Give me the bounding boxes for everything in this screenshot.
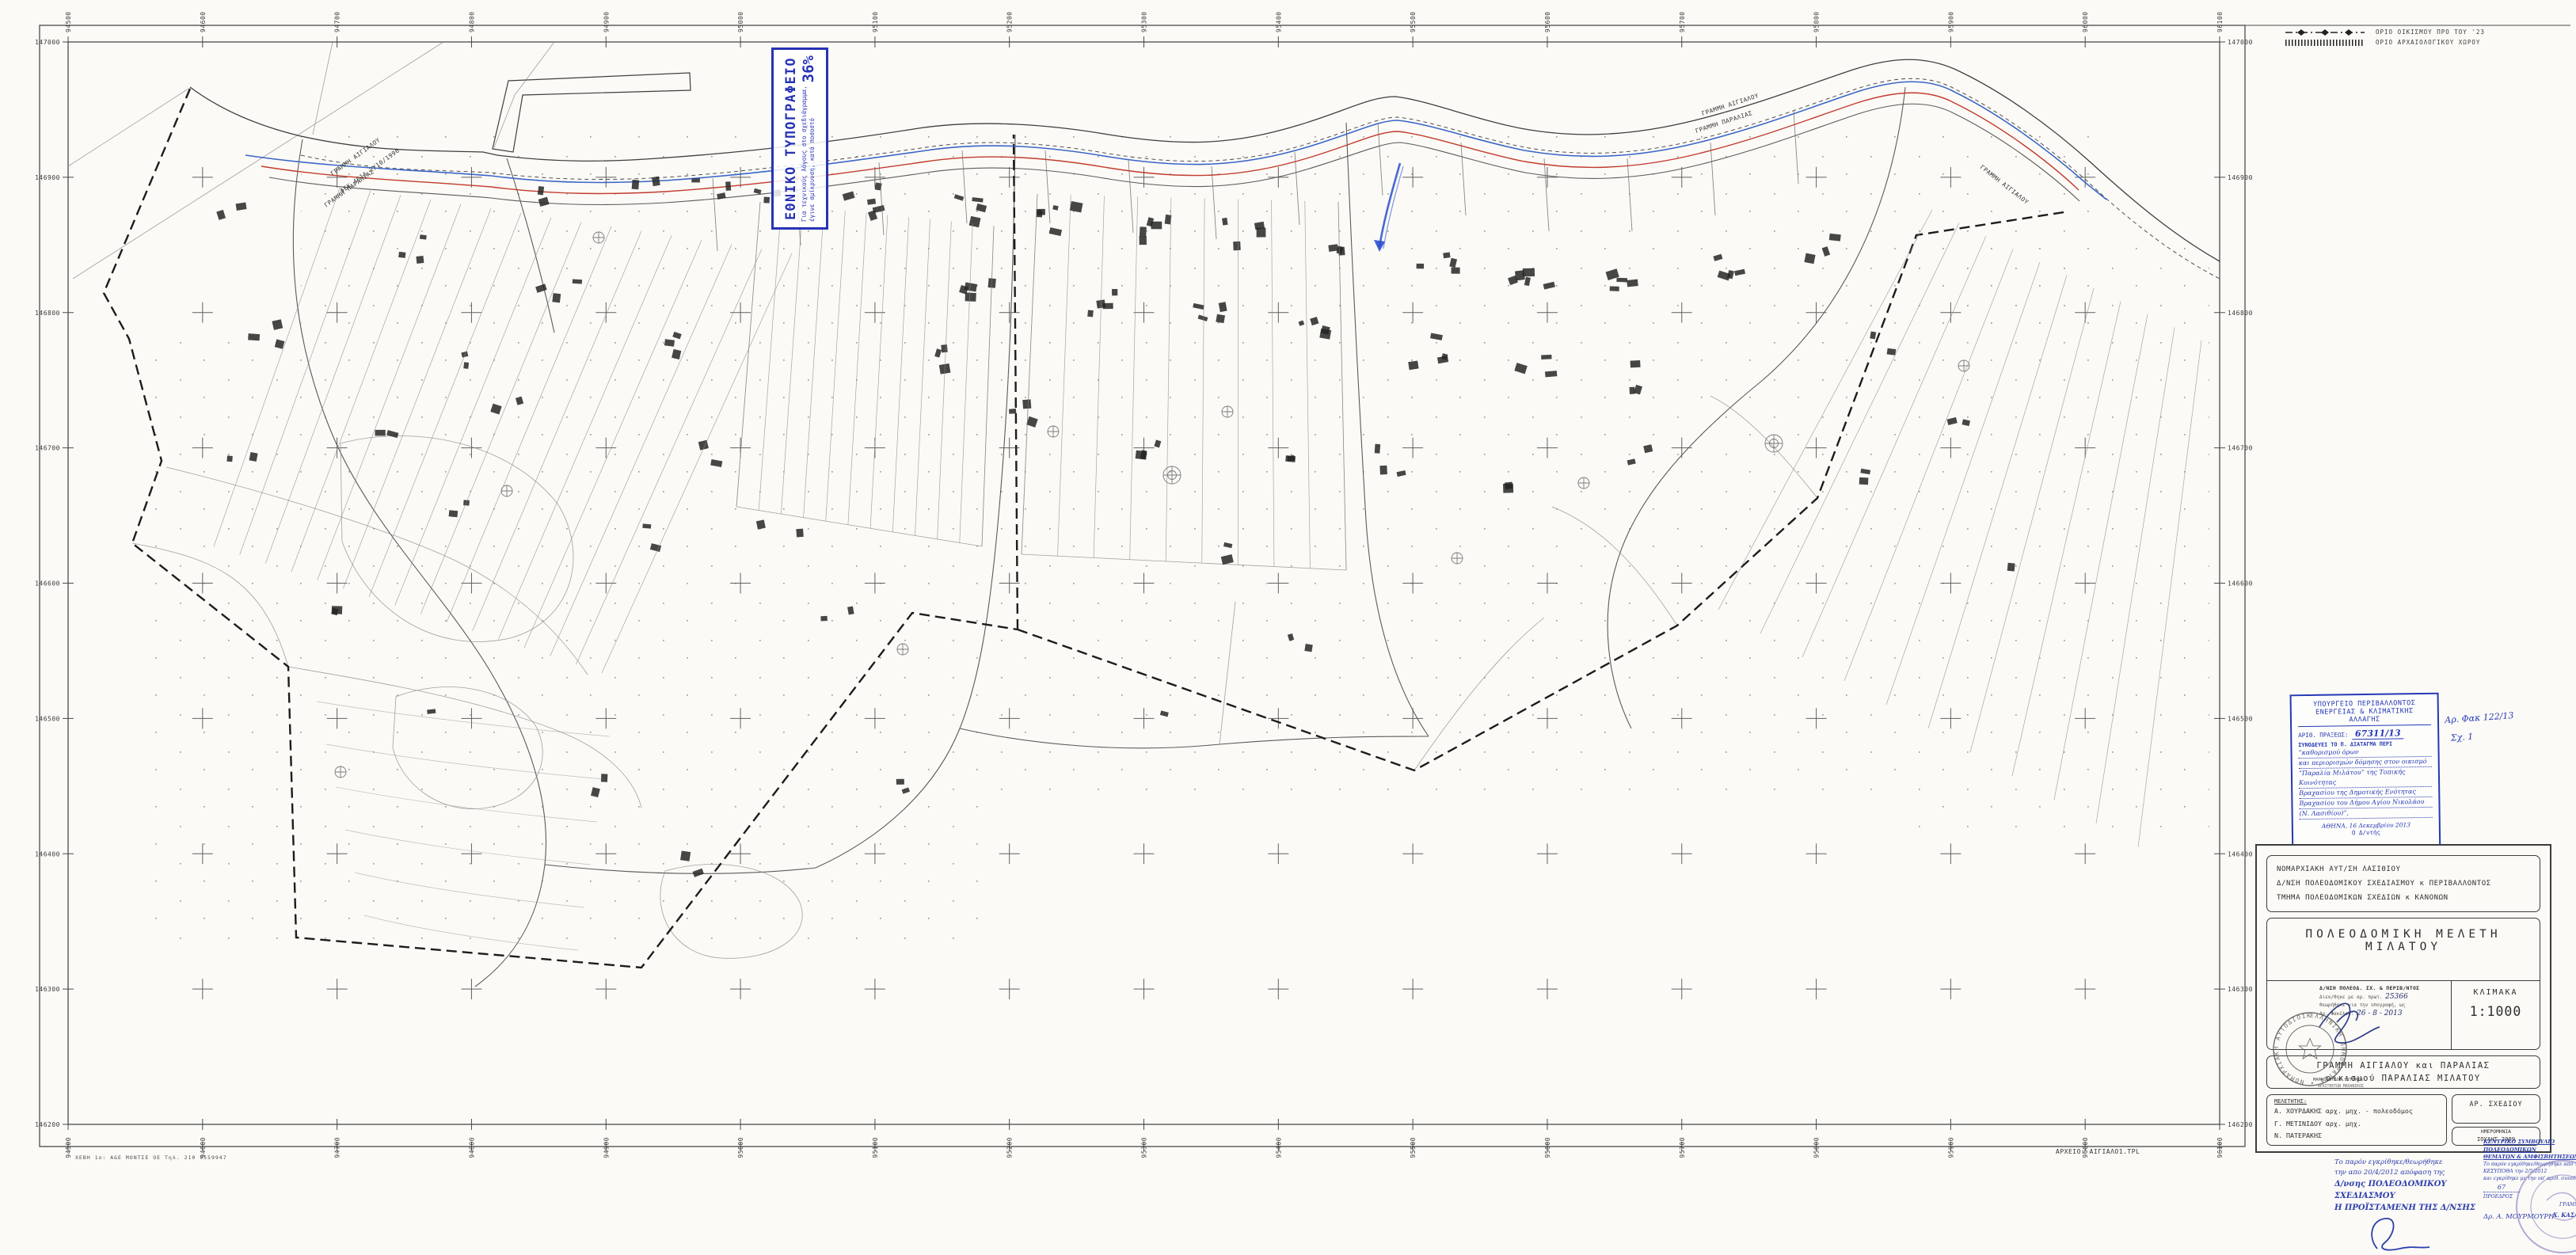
svg-text:146900: 146900 xyxy=(35,174,60,181)
date-label: ΗΜΕΡΟΜΗΝΙΑ xyxy=(2452,1129,2540,1135)
svg-text:95800: 95800 xyxy=(1813,11,1821,32)
ministry-environment-stamp: ΥΠΟΥΡΓΕΙΟ ΠΕΡΙΒΑΛΛΟΝΤΟΣ ΕΝΕΡΓΕΙΑΣ & ΚΛΙΜ… xyxy=(2290,693,2441,863)
round-seal: ΕΛΛΗΝΙΚΗ ΔΗΜΟΚΡΑΤΙΑ • ΝΟΜΑΡΧΙΑΚΗ ΑΥΤΟΔΙΟ… xyxy=(2264,995,2383,1098)
svg-text:94700: 94700 xyxy=(334,1137,341,1158)
svg-text:146700: 146700 xyxy=(2228,445,2253,452)
national-printing-office-stamp: ΕΘΝΙΚΟ ΤΥΠΟΓΡΑΦΕΙΟ Για τεχνικούς λόγους … xyxy=(771,48,828,230)
decree-hand-line: “Παραλία Μιλάτου” της Τοπικής Κοινότητας xyxy=(2299,767,2432,789)
svg-text:96100: 96100 xyxy=(2216,11,2224,32)
scale-value: 1:1000 xyxy=(2452,1004,2540,1019)
protocol-number: 25366 xyxy=(2385,993,2408,1001)
agency-line3: ΤΜΗΜΑ ΠΟΛΕΟΔΟΜΙΚΩΝ ΣΧΕΔΙΩΝ κ ΚΑΝΟΝΩΝ xyxy=(2277,891,2530,905)
svg-text:94900: 94900 xyxy=(603,1137,610,1158)
svg-text:95300: 95300 xyxy=(1141,11,1148,32)
council-header1: ΚΕΝΤΡΙΚΟ ΣΥΜΒΟΥΛΙΟ ΠΟΛΕΟΔΟΜΙΚΩΝ xyxy=(2483,1139,2576,1154)
decree-hand-line: (Ν. Λασιθίου)”, xyxy=(2300,808,2433,820)
svg-text:146600: 146600 xyxy=(35,580,60,588)
directorate-approval-stamp: Το παρόν εγκρίθηκε/θεωρήθηκε την απο 20/… xyxy=(2334,1158,2505,1255)
svg-text:95200: 95200 xyxy=(1006,1137,1014,1158)
svg-text:95000: 95000 xyxy=(737,11,744,32)
hatched-line-icon xyxy=(2285,39,2365,47)
printing-office-title: ΕΘΝΙΚΟ ΤΥΠΟΓΡΑΦΕΙΟ xyxy=(783,55,798,222)
svg-text:94800: 94800 xyxy=(468,1137,475,1158)
map-sheet: ΓΡΑΜΜΗ ΑΙΓΙΑΛΟΥ ΦΕΚ 461Δ 2/10/1996 ΓΡΑΜΜ… xyxy=(0,0,2576,1255)
svg-text:147000: 147000 xyxy=(2228,39,2253,46)
file-number-notes: Αρ. Φακ 122/13 Σχ. 1 xyxy=(2445,710,2516,743)
svg-text:95900: 95900 xyxy=(1947,1137,1954,1158)
bsl-line: Το παρόν εγκρίθηκε/θεωρήθηκε xyxy=(2334,1158,2505,1168)
consultant-name: Γ. ΜΕΤΙΝΙΔΟΥ αρχ. μηχ. xyxy=(2274,1119,2439,1130)
svg-text:146200: 146200 xyxy=(35,1121,60,1128)
svg-text:95400: 95400 xyxy=(1275,11,1282,32)
consultant-name: Ν. ΠΑΤΕΡΑΚΗΣ xyxy=(2274,1131,2439,1142)
bsl-line: Η ΠΡΟΪΣΤΑΜΕΝΗ ΤΗΣ Δ/ΝΣΗΣ xyxy=(2334,1202,2505,1214)
agency-box: ΝΟΜΑΡΧΙΑΚΗ ΑΥΤ/ΣΗ ΛΑΣΙΘΙΟΥ Δ/ΝΣΗ ΠΟΛΕΟΔΟ… xyxy=(2266,855,2540,912)
scale-label: ΚΛΙΜΑΚΑ xyxy=(2452,988,2540,997)
praxis-number-line: ΑΡΙΘ. ΠΡΑΞΕΩΣ: 67311/13 xyxy=(2298,728,2431,740)
praxis-number-value: 67311/13 xyxy=(2352,728,2404,740)
svg-text:95400: 95400 xyxy=(1275,1137,1282,1158)
svg-text:94500: 94500 xyxy=(65,11,72,32)
svg-text:94700: 94700 xyxy=(334,11,341,32)
archive-file-note: ΑΡΧΕΙΟ: ΑΙΓΙΑΛΟ1.ΤΡL xyxy=(2056,1148,2140,1155)
scale-box: ΚΛΙΜΑΚΑ 1:1000 xyxy=(2451,981,2540,1049)
svg-text:95700: 95700 xyxy=(1679,11,1686,32)
consultants-label: ΜΕΛΕΤΗΤΗΣ: xyxy=(2274,1098,2439,1105)
svg-text:146800: 146800 xyxy=(2228,310,2253,317)
svg-text:146400: 146400 xyxy=(35,850,60,858)
svg-text:95500: 95500 xyxy=(1410,1137,1417,1158)
dashdot-diamond-line-icon xyxy=(2285,29,2365,36)
svg-text:95200: 95200 xyxy=(1006,11,1014,32)
consultants-box: ΜΕΛΕΤΗΤΗΣ: Α. ΧΟΥΡΔΑΚΗΣ αρχ. μηχ. - πολε… xyxy=(2266,1094,2447,1146)
ministry-header2: ΕΝΕΡΓΕΙΑΣ & ΚΛΙΜΑΤΙΚΗΣ ΑΛΛΑΓΗΣ xyxy=(2298,707,2431,727)
svg-text:95100: 95100 xyxy=(872,11,879,32)
approval-stamp-area: Δ/ΝΣΗ ΠΟΛΕΟΔ. ΣΧ. & ΠΕΡΙΒ/ΝΤΟΣ Διεκ/θηκε… xyxy=(2267,981,2451,1049)
svg-text:95000: 95000 xyxy=(737,1137,744,1158)
legend-label-settlement: ΟΡΙΟ ΟΙΚΙΣΜΟΥ ΠΡΟ ΤΟΥ '23 xyxy=(2376,29,2485,36)
svg-text:146400: 146400 xyxy=(2228,850,2253,858)
svg-text:95600: 95600 xyxy=(1544,1137,1551,1158)
svg-text:146500: 146500 xyxy=(2228,715,2253,722)
svg-text:146900: 146900 xyxy=(2228,174,2253,181)
svg-text:95100: 95100 xyxy=(872,1137,879,1158)
bsl-line: την απο 20/4/2012 απόφαση της xyxy=(2334,1168,2505,1178)
agency-line1: ΝΟΜΑΡΧΙΑΚΗ ΑΥΤ/ΣΗ ΛΑΣΙΘΙΟΥ xyxy=(2277,862,2530,877)
drawing-number-box: ΑΡ. ΣΧΕΔΙΟΥ xyxy=(2452,1094,2540,1124)
reduction-percent: 36% xyxy=(800,55,817,82)
printing-office-note: Για τεχνικούς λόγους στο σχεδιάγραμμα, έ… xyxy=(801,86,816,222)
consultant-name: Α. ΧΟΥΡΔΑΚΗΣ αρχ. μηχ. - πολεοδόμος xyxy=(2274,1106,2439,1117)
svg-text:94600: 94600 xyxy=(200,11,207,32)
agency-line2: Δ/ΝΣΗ ΠΟΛΕΟΔΟΜΙΚΟΥ ΣΧΕΔΙΑΣΜΟΥ κ ΠΕΡΙΒΑΛΛ… xyxy=(2277,877,2530,891)
study-title: ΠΟΛΕΟΔΟΜΙΚΗ ΜΕΛΕΤΗ ΜΙΛΑΤΟΥ xyxy=(2267,918,2540,981)
legend-row-settlement: ΟΡΙΟ ΟΙΚΙΣΜΟΥ ΠΡΟ ΤΟΥ '23 xyxy=(2285,27,2547,37)
map-canvas: ΓΡΑΜΜΗ ΑΙΓΙΑΛΟΥ ΦΕΚ 461Δ 2/10/1996 ΓΡΑΜΜ… xyxy=(0,0,2576,1255)
svg-text:146700: 146700 xyxy=(35,445,60,452)
svg-text:95700: 95700 xyxy=(1679,1137,1686,1158)
title-block: ΝΟΜΑΡΧΙΑΚΗ ΑΥΤ/ΣΗ ΛΑΣΙΘΙΟΥ Δ/ΝΣΗ ΠΟΛΕΟΔΟ… xyxy=(2255,844,2551,1153)
svg-text:96100: 96100 xyxy=(2216,1137,2224,1158)
director-role: Ο Δ/ντής xyxy=(2300,828,2433,837)
svg-text:146500: 146500 xyxy=(35,715,60,722)
svg-text:146300: 146300 xyxy=(35,986,60,993)
study-box: ΠΟΛΕΟΔΟΜΙΚΗ ΜΕΛΕΤΗ ΜΙΛΑΤΟΥ Δ/ΝΣΗ ΠΟΛΕΟΔ.… xyxy=(2266,918,2540,1050)
svg-text:94900: 94900 xyxy=(603,11,610,32)
grid-crosses xyxy=(92,66,2196,1101)
purple-round-seal xyxy=(2509,1158,2576,1255)
svg-text:96000: 96000 xyxy=(2082,11,2089,32)
svg-text:146200: 146200 xyxy=(2228,1121,2253,1128)
svg-text:94800: 94800 xyxy=(468,11,475,32)
legend: ΟΡΙΟ ΟΙΚΙΣΜΟΥ ΠΡΟ ΤΟΥ '23 ΟΡΙΟ ΑΡΧΑΙΟΛΟΓ… xyxy=(2285,27,2547,48)
svg-text:95900: 95900 xyxy=(1947,11,1954,32)
svg-text:146600: 146600 xyxy=(2228,580,2253,588)
legend-row-archaeological: ΟΡΙΟ ΑΡΧΑΙΟΛΟΓΙΚΟΥ ΧΩΡΟΥ xyxy=(2285,37,2547,48)
print-shop-note: ΧΕΒΗ 1ο: Α&Ε ΜΟΝΤΣΕ ΟΕ Τηλ. 210 9559947 xyxy=(75,1154,227,1161)
svg-text:95600: 95600 xyxy=(1544,11,1551,32)
head-signature xyxy=(2353,1214,2441,1255)
svg-text:94500: 94500 xyxy=(65,1137,72,1158)
svg-text:95300: 95300 xyxy=(1141,1137,1148,1158)
signer-name: ΜΑΡΚΟΠΟΥΛΟΥ ΕΥΓΕΝΙΑ xyxy=(2313,1078,2364,1082)
bsl-line: Δ/νσης ΠΟΛΕΟΔΟΜΙΚΟΥ ΣΧΕΔΙΑΣΜΟΥ xyxy=(2334,1178,2505,1202)
signer-title: ΑΡΧΙΤΕΚΤΩΝ ΜΗΧΑΝΙΚΟΣ xyxy=(2318,1084,2364,1089)
svg-text:147000: 147000 xyxy=(35,39,60,46)
approval-line1: Δ/ΝΣΗ ΠΟΛΕΟΔ. ΣΧ. & ΠΕΡΙΒ/ΝΤΟΣ xyxy=(2319,985,2446,991)
svg-text:95500: 95500 xyxy=(1410,11,1417,32)
svg-text:95800: 95800 xyxy=(1813,1137,1821,1158)
svg-text:146800: 146800 xyxy=(35,310,60,317)
svg-text:146300: 146300 xyxy=(2228,986,2253,993)
legend-label-archaeological: ΟΡΙΟ ΑΡΧΑΙΟΛΟΓΙΚΟΥ ΧΩΡΟΥ xyxy=(2376,39,2480,46)
